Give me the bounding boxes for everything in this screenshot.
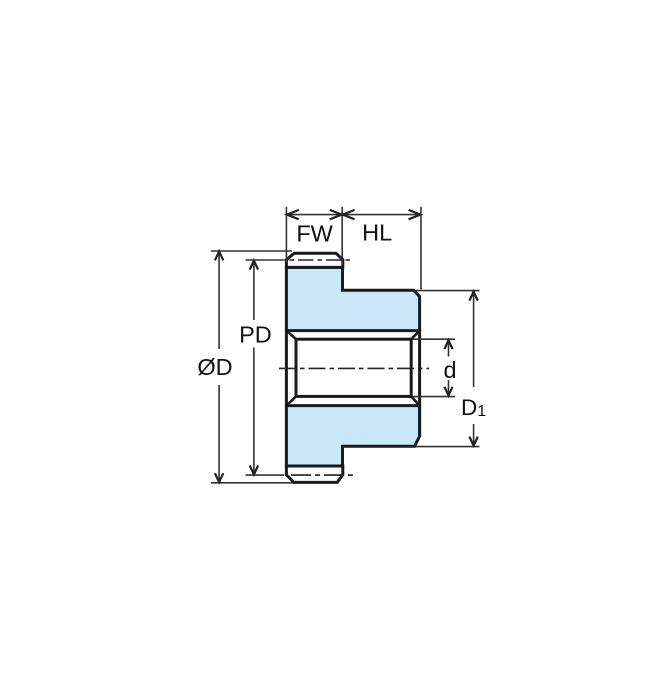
svg-text:HL: HL: [362, 220, 392, 246]
svg-text:PD: PD: [239, 322, 272, 348]
svg-text:d: d: [443, 357, 456, 383]
svg-text:ØD: ØD: [197, 354, 232, 380]
svg-text:FW: FW: [296, 220, 333, 246]
